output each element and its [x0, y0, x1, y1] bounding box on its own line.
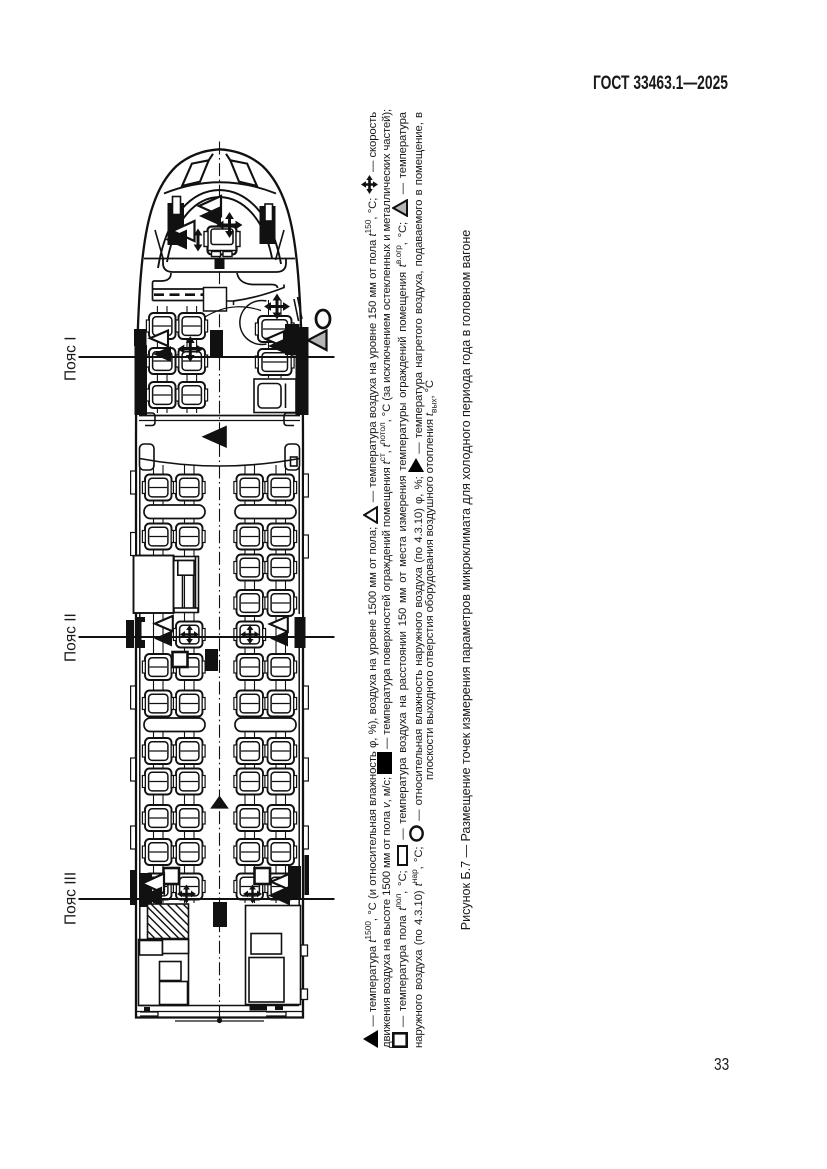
svg-text:Пояс I: Пояс I — [63, 336, 80, 381]
svg-text:Пояс III: Пояс III — [63, 872, 80, 925]
svg-text:Пояс II: Пояс II — [63, 613, 80, 662]
